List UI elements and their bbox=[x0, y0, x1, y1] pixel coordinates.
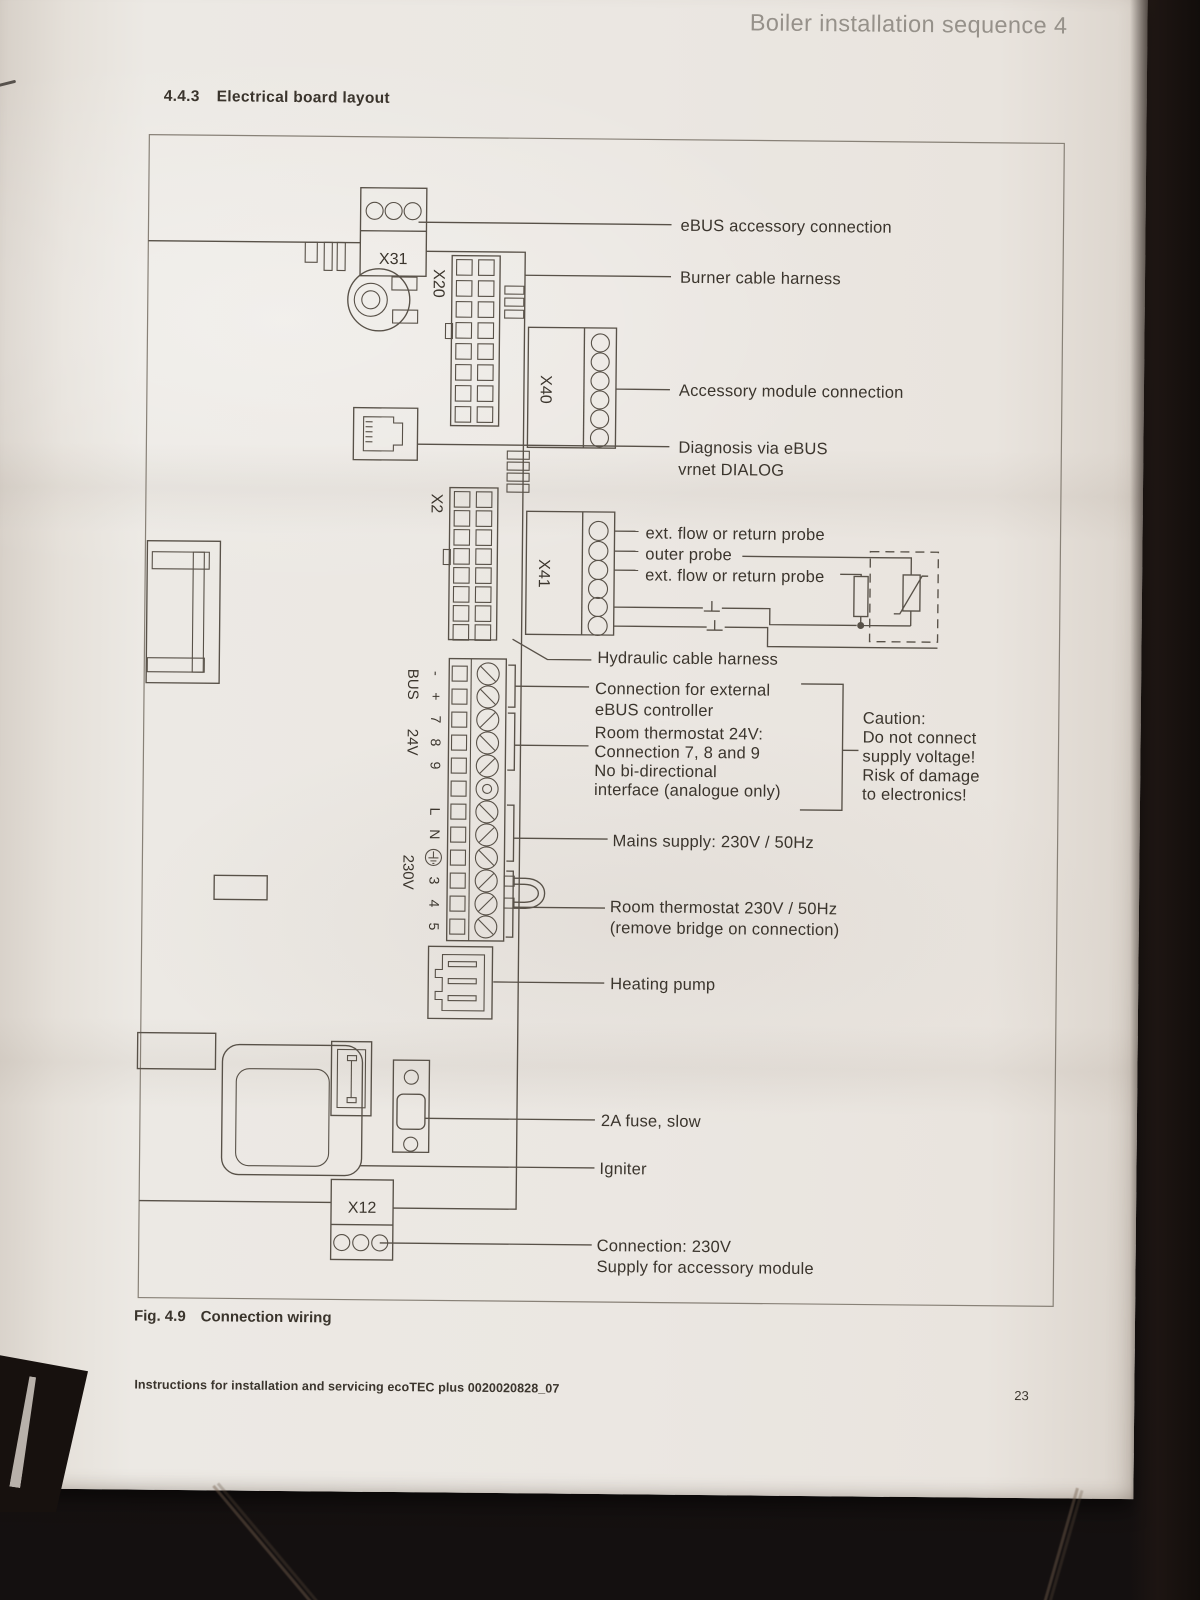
heating-pump-connector bbox=[428, 946, 605, 1020]
callout-burner-harness: Burner cable harness bbox=[680, 269, 841, 289]
callout-room24-line3: No bi-directional bbox=[594, 762, 717, 781]
bracket bbox=[507, 713, 515, 770]
callout-room24-line2: Connection 7, 8 and 9 bbox=[594, 743, 760, 763]
paper-sheet: Boiler installation sequence 4 4.4.3 Ele… bbox=[0, 0, 1148, 1499]
callout-diagnosis-line1: Diagnosis via eBUS bbox=[678, 439, 828, 458]
connection-wiring-diagram: X31 bbox=[0, 0, 1200, 1600]
leader-line bbox=[419, 222, 672, 224]
leader-line bbox=[417, 444, 669, 446]
sensor-dashed-box bbox=[870, 552, 939, 643]
resistor-symbol bbox=[854, 576, 868, 616]
pin-label-L: L bbox=[427, 807, 443, 815]
x12-connector: X12 bbox=[331, 1179, 593, 1262]
callout-ebus-accessory: eBUS accessory connection bbox=[680, 217, 892, 237]
caution-line5: to electronics! bbox=[862, 786, 967, 805]
cable-grommet bbox=[347, 269, 418, 332]
leader-line bbox=[425, 1118, 595, 1120]
bracket bbox=[506, 871, 514, 937]
junction-dot bbox=[857, 622, 864, 629]
x31-label: X31 bbox=[379, 251, 408, 268]
callout-ebus-controller-line1: Connection for external bbox=[595, 680, 770, 700]
callout-probe-outer: outer probe bbox=[645, 545, 732, 564]
leader-line bbox=[514, 838, 608, 839]
callout-accessory-module: Accessory module connection bbox=[679, 382, 904, 402]
pin-label-3: 3 bbox=[426, 876, 442, 884]
callout-probe-1: ext. flow or return probe bbox=[645, 524, 824, 544]
group-label-230v: 230V bbox=[399, 855, 416, 890]
callout-hydraulic-harness: Hydraulic cable harness bbox=[597, 649, 778, 669]
pin-label-plus: + bbox=[428, 692, 444, 700]
pin-label-9: 9 bbox=[428, 761, 444, 769]
x41-label: X41 bbox=[535, 559, 552, 588]
caution-line1: Caution: bbox=[863, 710, 926, 729]
figure-caption: Fig. 4.9 Connection wiring bbox=[134, 1308, 332, 1327]
board-left-components bbox=[137, 541, 270, 1070]
x12-label: X12 bbox=[348, 1200, 377, 1217]
screw-terminals bbox=[475, 663, 500, 938]
x2-label: X2 bbox=[428, 494, 445, 514]
leader-line bbox=[380, 1243, 592, 1245]
callout-ebus-controller-line2: eBUS controller bbox=[595, 701, 714, 720]
caution-bracket bbox=[800, 684, 859, 811]
bracket bbox=[506, 805, 514, 861]
callout-room230-line1: Room thermostat 230V / 50Hz bbox=[610, 898, 838, 918]
leader-line bbox=[512, 639, 591, 660]
earth-symbol bbox=[425, 849, 441, 865]
group-label-bus: BUS bbox=[404, 669, 421, 700]
pin-label-8: 8 bbox=[428, 738, 444, 746]
callout-probe-2: ext. flow or return probe bbox=[645, 566, 824, 586]
leader-line bbox=[493, 982, 604, 983]
table-surface bbox=[1130, 0, 1200, 1600]
callout-igniter: Igniter bbox=[599, 1160, 647, 1178]
rj-diagnosis-socket-icon bbox=[353, 408, 417, 461]
earth-symbol bbox=[704, 601, 720, 611]
x40-label: X40 bbox=[537, 375, 554, 404]
caution-line3: supply voltage! bbox=[862, 748, 975, 767]
earth-symbol bbox=[707, 620, 723, 630]
caution-line2: Do not connect bbox=[863, 729, 977, 748]
callout-x12-supply-line1: Connection: 230V bbox=[597, 1237, 732, 1256]
leader-line bbox=[525, 275, 671, 276]
page-number: 23 bbox=[1014, 1388, 1029, 1403]
caution-line4: Risk of damage bbox=[862, 767, 980, 786]
callout-mains-supply: Mains supply: 230V / 50Hz bbox=[613, 832, 814, 852]
callout-room230-line2: (remove bridge on connection) bbox=[610, 919, 840, 939]
leader-line bbox=[616, 389, 670, 390]
igniter-block bbox=[221, 1040, 595, 1178]
fuse-component bbox=[393, 1060, 596, 1154]
callout-fuse: 2A fuse, slow bbox=[601, 1112, 701, 1131]
callout-room24-line4: interface (analogue only) bbox=[594, 781, 781, 801]
pin-label-minus: - bbox=[428, 671, 444, 676]
pin-label-4: 4 bbox=[426, 899, 442, 907]
figure-title: Connection wiring bbox=[201, 1308, 332, 1326]
callout-room24-line1: Room thermostat 24V: bbox=[595, 724, 764, 744]
callout-diagnosis-line2: vrnet DIALOG bbox=[678, 461, 784, 480]
pin-label-N: N bbox=[427, 829, 443, 839]
leader-line bbox=[515, 686, 589, 687]
x41-connector: X41 bbox=[526, 511, 615, 635]
x20-label: X20 bbox=[430, 269, 447, 298]
group-label-24v: 24V bbox=[403, 729, 420, 756]
cable-comb-icon bbox=[507, 451, 529, 492]
cable-comb-icon bbox=[505, 286, 524, 318]
callout-x12-supply-line2: Supply for accessory module bbox=[596, 1258, 813, 1278]
leader-line bbox=[359, 1166, 594, 1168]
figure-label: Fig. 4.9 bbox=[134, 1308, 186, 1325]
pin-label-7: 7 bbox=[428, 715, 444, 723]
page-content: Boiler installation sequence 4 4.4.3 Ele… bbox=[0, 0, 1200, 1600]
x2-connector: X2 bbox=[426, 487, 498, 640]
bridge-link bbox=[504, 876, 545, 908]
callout-heating-pump: Heating pump bbox=[610, 975, 715, 994]
x31-connector: X31 bbox=[360, 188, 427, 277]
x20-connector: X20 bbox=[428, 255, 500, 426]
pin-label-5: 5 bbox=[426, 922, 442, 930]
terminal-strip: - + 7 8 9 L N 3 4 5 BUS 24V 230V bbox=[399, 658, 610, 942]
bracket bbox=[508, 665, 515, 707]
photo-background: Boiler installation sequence 4 4.4.3 Ele… bbox=[0, 0, 1200, 1600]
x40-connector: X40 bbox=[527, 327, 616, 448]
leader-line bbox=[515, 745, 589, 746]
